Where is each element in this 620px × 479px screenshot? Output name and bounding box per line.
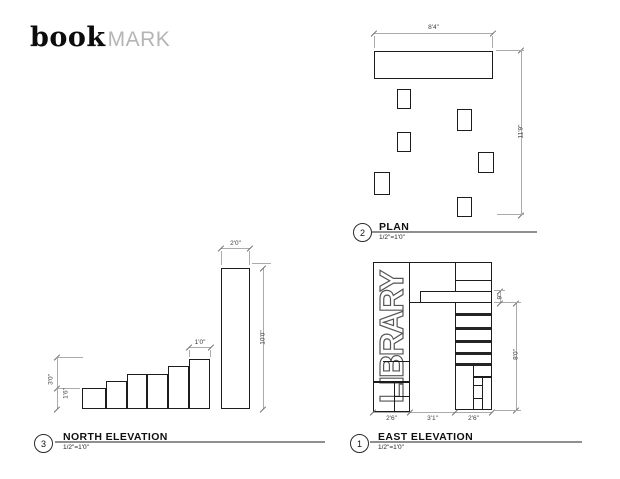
stair-tread	[456, 327, 491, 330]
ext-line	[57, 357, 83, 358]
view-number-badge: 2	[353, 223, 372, 242]
north-step-width-dim: 1'0"	[189, 339, 211, 346]
label-underline	[372, 231, 537, 233]
plan-box-outline	[397, 132, 411, 152]
north-step-outline	[168, 366, 189, 409]
cabinet-shelf-line	[473, 398, 482, 399]
north-column-outline	[221, 268, 250, 409]
east-plank-dim: 9"	[497, 289, 504, 305]
north-column-height-dim: 10'0"	[260, 323, 267, 353]
ext-line	[221, 251, 222, 265]
dim-line	[221, 248, 250, 249]
dim-tick	[260, 406, 266, 412]
dim-line	[373, 412, 492, 413]
plan-box-outline	[397, 89, 411, 109]
ext-line	[492, 36, 493, 48]
ext-line	[210, 350, 211, 357]
stair-tread	[456, 352, 491, 355]
north-step-outline	[127, 374, 147, 409]
logo: book MARK	[30, 22, 170, 53]
label-underline	[370, 441, 582, 443]
stair-tread	[456, 340, 491, 343]
plan-width-dim: 8'4"	[374, 24, 493, 31]
plan-box-outline	[374, 172, 390, 195]
view-scale: 1/2"=1'0"	[63, 444, 89, 451]
ext-line	[496, 50, 524, 51]
east-height-dim: 8'0"	[513, 340, 520, 370]
shelf-line	[373, 381, 410, 383]
plan-top-shelf-outline	[374, 51, 493, 79]
drawing-sheet: book MARK 8'4" 11'9" 2 PLAN 1/2"=1'0" 1'…	[0, 0, 620, 479]
ext-line	[189, 350, 190, 357]
ext-line	[249, 251, 250, 265]
ext-line	[494, 410, 521, 411]
dim-line	[189, 347, 211, 348]
dim-line	[374, 33, 493, 34]
library-vertical-text: LIBRARY	[373, 263, 410, 412]
view-number: 1	[357, 439, 362, 449]
view-scale: 1/2"=1'0"	[378, 444, 404, 451]
cabinet-divider-line	[473, 364, 474, 410]
cabinet-shelf-line	[473, 385, 482, 386]
view-scale: 1/2"=1'0"	[379, 234, 405, 241]
shelf-line	[394, 396, 410, 397]
dim-line	[57, 357, 58, 409]
north-column-width-dim: 2'0"	[221, 240, 250, 247]
ext-line	[497, 214, 524, 215]
dim-tick	[54, 406, 60, 412]
north-step-outline	[106, 381, 127, 409]
plan-box-outline	[457, 197, 472, 217]
ext-line	[252, 263, 271, 264]
north-step-outline	[189, 359, 210, 409]
east-width3-dim: 2'6"	[455, 415, 492, 422]
shelf-line	[383, 361, 410, 362]
logo-mark: MARK	[108, 28, 171, 52]
east-width1-dim: 2'6"	[373, 415, 410, 422]
plan-box-outline	[478, 152, 494, 173]
north-height1-dim: 1'6"	[63, 382, 70, 406]
east-width2-dim: 3'1"	[410, 415, 455, 422]
north-step-outline	[147, 374, 168, 409]
view-number: 2	[360, 228, 365, 238]
ext-line	[374, 36, 375, 48]
north-step-outline	[82, 388, 106, 409]
view-number-badge: 3	[34, 434, 53, 453]
cabinet-divider-line	[482, 376, 483, 410]
north-height3-dim: 3'0"	[48, 368, 55, 392]
dim-tick	[490, 30, 496, 36]
shelf-line	[455, 280, 492, 281]
view-number: 3	[41, 439, 46, 449]
plan-depth-dim: 11'9"	[518, 117, 525, 147]
label-underline	[55, 441, 325, 443]
view-number-badge: 1	[350, 434, 369, 453]
east-beam-top-line	[410, 262, 455, 263]
stair-tread	[456, 313, 491, 316]
plan-box-outline	[457, 109, 472, 131]
logo-book: book	[30, 22, 106, 53]
east-plank-outline	[420, 291, 492, 303]
